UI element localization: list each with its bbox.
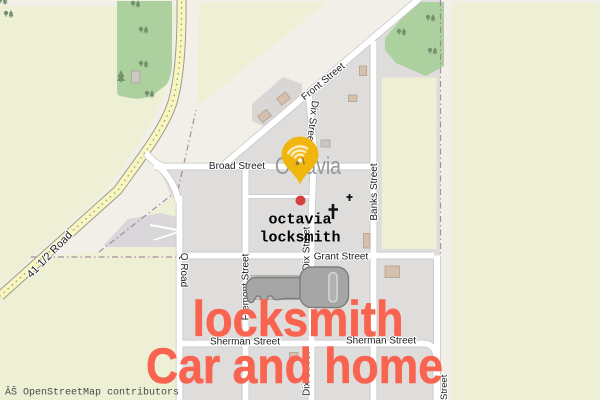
svg-text:octavia: octavia xyxy=(268,212,331,229)
svg-text:Banks Street: Banks Street xyxy=(369,163,380,220)
svg-text:locksmith: locksmith xyxy=(259,230,340,247)
svg-text:Broad Street: Broad Street xyxy=(209,161,265,172)
svg-text:Car and home: Car and home xyxy=(146,338,443,394)
svg-text:Q Road: Q Road xyxy=(178,253,189,287)
svg-text:Grant Street: Grant Street xyxy=(314,252,369,263)
